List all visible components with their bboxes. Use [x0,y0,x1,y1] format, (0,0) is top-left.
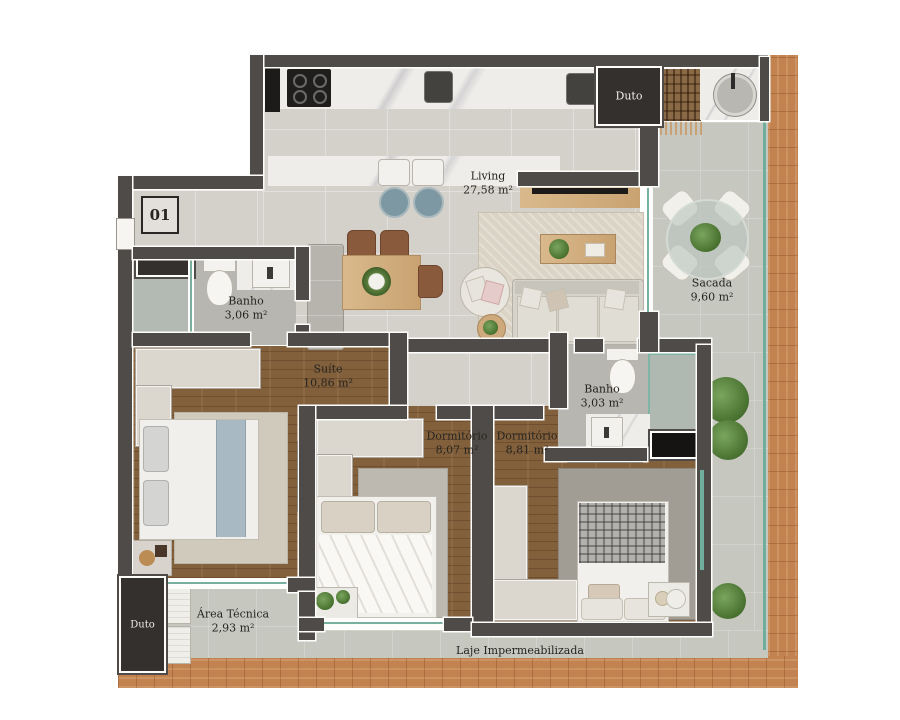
wood-deck-right [768,55,798,688]
wall-suite-top-a [133,333,250,346]
sofa-pillow [604,288,627,311]
balcony-table-plant [690,223,721,252]
wall-areatec-right [299,592,315,640]
floor-plan: Duto Duto 01 Living 27,58 m² Banho 3,06 … [0,0,900,720]
duct-top: Duto [596,66,662,126]
burner [313,90,327,104]
suite-pillow [143,426,169,472]
suite-nightstand [133,540,172,576]
coffee-table [540,234,616,264]
suite-pillow [143,480,169,526]
room-label-banho-social: Banho 3,06 m² [225,295,268,324]
island-basin [412,159,444,186]
bath-sink [252,256,290,288]
shower-glass [188,250,194,344]
slab-label: Laje Impermeabilizada [456,644,584,658]
wall-dorm1-bottom-b [444,618,472,631]
dorm1-wardrobe-top [317,419,423,457]
suite-wardrobe-top [136,349,260,388]
tv-screen [532,188,628,194]
faucet [267,267,273,279]
burner [293,74,307,88]
dining-chair [380,230,409,258]
bar-stool [379,187,410,218]
wall-kitchen-left [250,55,263,187]
wood-deck-bottom [118,656,798,688]
kitchen-sink [424,71,453,103]
wall-suite-dorm1 [299,406,315,592]
coffee-table-plant [549,239,569,259]
wall-sacada-post-bottom [640,312,658,352]
suite-bed [139,419,259,540]
wall-dorm1-bottom-a [299,618,324,631]
round-armchair [460,267,510,317]
room-label-dormitorio-1: Dormitório 8,07 m² [426,430,487,459]
glass-railing [763,122,766,650]
round-basin [714,74,756,116]
room-label-banho-suite: Banho 3,03 m² [581,383,624,412]
curtain-fringe [660,122,702,135]
dark-tray [155,545,167,557]
room-label-area-tecnica: Área Técnica 2,93 m² [197,608,269,637]
wall-banho1-right-a [296,247,309,300]
wall-tv [518,172,658,186]
wall-hall-left [390,333,407,408]
dining-chair [347,230,376,258]
cooktop [287,69,331,107]
fridge [265,68,280,112]
unit-number: 01 [150,206,171,224]
sofa-pillow [519,286,543,310]
burner [313,74,327,88]
entry-door [116,218,135,250]
wood-tray [139,550,155,566]
grill-block [658,68,702,122]
duct-bottom-label: Duto [130,619,155,630]
wall-top [250,55,768,67]
wall-living-bottom-a [407,339,550,352]
side-table-plant [483,320,498,335]
condenser-unit [163,586,191,624]
armchair-pillow [481,280,505,305]
dorm1-plant [316,592,334,610]
dorm2-window [700,470,704,570]
bedroom-hall-floor [407,346,552,406]
wall-entry-top [118,176,263,189]
terrace-pot [666,589,686,609]
wall-dorm1-top-a [299,406,407,419]
wall-sacada-post-top [640,120,658,186]
room-label-sacada: Sacada 9,60 m² [691,277,734,306]
island-basin [378,159,410,186]
dining-chair [418,265,443,298]
tv-sideboard [520,186,640,208]
wall-banho2-bottom [545,448,647,461]
wall-banho1-top [133,247,309,259]
dorm1-window [324,618,444,629]
terrace-plant [710,583,746,619]
sacada-glass-door [644,188,653,312]
room-label-living: Living 27,58 m² [463,170,513,199]
dining-centerpiece [362,267,391,296]
condenser-unit [163,626,191,664]
bath-sink [591,417,623,447]
faucet [604,427,609,438]
wall-suite-bottom-b [288,578,315,592]
suite-window [158,578,288,589]
duct-bottom: Duto [119,576,166,673]
faucet [731,73,735,89]
suite-runner [216,420,246,537]
wall-dorm2-top [493,406,543,419]
dorm1-plant [336,590,350,604]
shower-area [648,353,701,437]
wall-dorm2-bottom [472,623,712,636]
wall-living-bottom-b [575,339,603,352]
coffee-table-decor [585,243,605,257]
wall-hall-right [550,333,567,408]
burner [293,90,307,104]
bar-stool [413,187,444,218]
dorm2-pillow [581,598,623,620]
room-label-dormitorio-2: Dormitório 8,81 m² [496,430,557,459]
dorm2-blanket [579,503,665,563]
dorm1-pillow [377,501,431,533]
room-label-suite: Suíte 10,86 m² [303,363,353,392]
dorm2-wardrobe-bottom [489,580,577,620]
unit-badge: 01 [141,196,179,234]
wall-basin-right [760,57,769,121]
terrace-plant [708,420,748,460]
dorm1-pillow [321,501,375,533]
duct-top-label: Duto [616,90,643,103]
sofa [512,279,644,345]
